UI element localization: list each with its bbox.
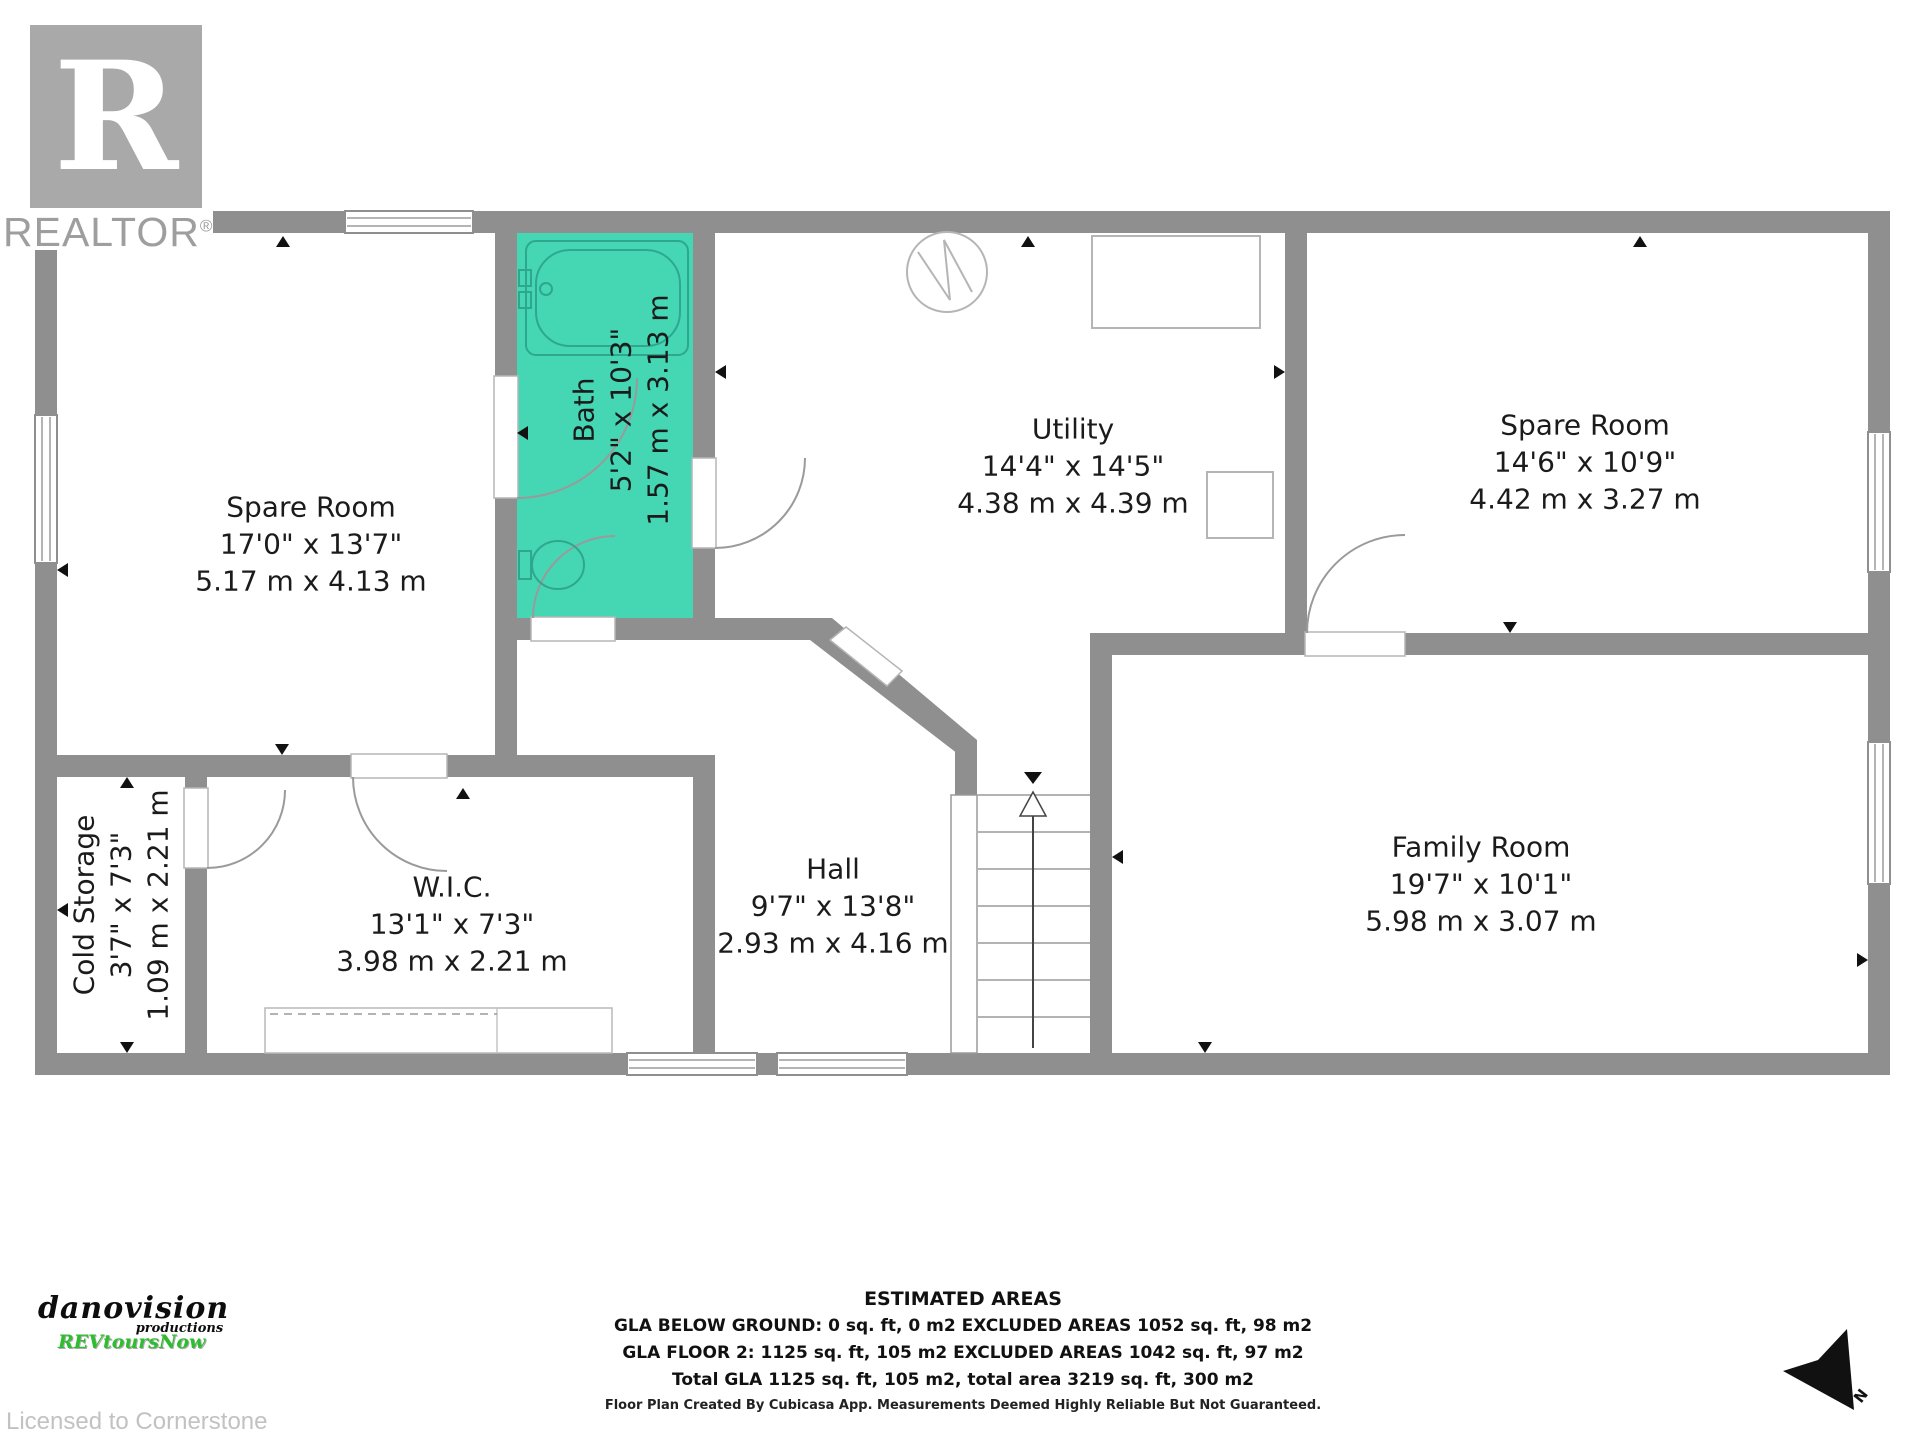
producer-brand: REVtoursNow — [58, 1333, 229, 1352]
stairs-marker-icon — [1024, 772, 1042, 784]
wall-family-left — [1090, 655, 1112, 1053]
window — [627, 1053, 757, 1075]
room-dim-imperial: 9'7" x 13'8" — [717, 889, 948, 926]
estimated-areas-line: GLA BELOW GROUND: 0 sq. ft, 0 m2 EXCLUDE… — [614, 1313, 1312, 1340]
room-dim-imperial: 14'6" x 10'9" — [1469, 445, 1700, 482]
room-name: Hall — [717, 852, 948, 889]
wall-stair-top — [955, 740, 977, 798]
stair-stringer — [951, 795, 977, 1053]
room-name: Cold Storage — [67, 789, 104, 1020]
door-leaf — [494, 376, 518, 498]
room-name: W.I.C. — [336, 870, 567, 907]
room-dim-metric: 5.98 m x 3.07 m — [1365, 903, 1596, 940]
room-dim-metric: 5.17 m x 4.13 m — [195, 563, 426, 600]
door-leaf — [692, 458, 716, 548]
appliance-icon — [1207, 472, 1273, 538]
door-leaf — [1305, 632, 1405, 656]
room-dim-metric: 1.09 m x 2.21 m — [140, 789, 177, 1020]
room-label-cold-storage: Cold Storage 3'7" x 7'3" 1.09 m x 2.21 m — [67, 789, 178, 1020]
window — [345, 211, 473, 233]
disclaimer-text: Floor Plan Created By Cubicasa App. Meas… — [605, 1398, 1321, 1413]
room-dim-metric: 1.57 m x 3.13 m — [640, 294, 677, 525]
floor-plan-page: R REALTOR® — [0, 0, 1920, 1440]
wall-utility-spare — [1285, 233, 1307, 655]
door-leaf — [184, 788, 208, 868]
north-compass: N — [1783, 1329, 1872, 1410]
wall-family-top — [1090, 633, 1890, 655]
wall-left — [35, 250, 57, 1075]
wall-utility-bottom — [715, 618, 810, 640]
stairs — [951, 772, 1090, 1053]
room-dim-metric: 4.42 m x 3.27 m — [1469, 481, 1700, 518]
door-arc — [1307, 535, 1405, 633]
wall-bottom — [35, 1053, 1890, 1075]
estimated-areas-line: Total GLA 1125 sq. ft, 105 m2, total are… — [614, 1367, 1312, 1394]
room-dim-imperial: 3'7" x 7'3" — [104, 789, 141, 1020]
estimated-areas-title: ESTIMATED AREAS — [614, 1288, 1312, 1310]
room-name: Bath — [567, 294, 604, 525]
licensed-text: Licensed to Cornerstone — [6, 1408, 268, 1436]
room-label-family-room: Family Room 19'7" x 10'1" 5.98 m x 3.07 … — [1365, 830, 1596, 941]
room-name: Family Room — [1365, 830, 1596, 867]
window — [1868, 742, 1890, 884]
north-arrow-icon — [1783, 1329, 1854, 1410]
door-arc — [207, 790, 285, 868]
room-name: Utility — [957, 412, 1188, 449]
window — [35, 415, 57, 563]
producer-name: danovision — [38, 1294, 229, 1324]
room-dim-imperial: 19'7" x 10'1" — [1365, 867, 1596, 904]
room-dim-imperial: 17'0" x 13'7" — [195, 527, 426, 564]
estimated-areas-line: GLA FLOOR 2: 1125 sq. ft, 105 m2 EXCLUDE… — [614, 1340, 1312, 1367]
room-label-spare-room-left: Spare Room 17'0" x 13'7" 5.17 m x 4.13 m — [195, 490, 426, 601]
room-label-utility: Utility 14'4" x 14'5" 4.38 m x 4.39 m — [957, 412, 1188, 523]
door-leaf — [531, 617, 615, 641]
room-dim-imperial: 14'4" x 14'5" — [957, 449, 1188, 486]
water-heater-zigzag-icon — [918, 240, 972, 300]
room-dim-metric: 2.93 m x 4.16 m — [717, 925, 948, 962]
closet — [265, 1008, 612, 1053]
door-arc — [353, 777, 447, 871]
wall-wic-hall — [693, 755, 715, 1053]
room-name: Spare Room — [195, 490, 426, 527]
room-label-hall: Hall 9'7" x 13'8" 2.93 m x 4.16 m — [717, 852, 948, 963]
window — [777, 1053, 907, 1075]
room-name: Spare Room — [1469, 408, 1700, 445]
door-leaf — [351, 754, 447, 778]
door-arc — [715, 458, 805, 548]
wall-bath-right — [693, 233, 715, 618]
room-dim-imperial: 5'2" x 10'3" — [604, 294, 641, 525]
appliance-icon — [1092, 236, 1260, 328]
window — [1868, 432, 1890, 572]
estimated-areas: ESTIMATED AREAS GLA BELOW GROUND: 0 sq. … — [614, 1288, 1312, 1395]
floor-plan-svg: N — [0, 0, 1920, 1440]
room-label-spare-room-right: Spare Room 14'6" x 10'9" 4.42 m x 3.27 m — [1469, 408, 1700, 519]
room-dim-metric: 4.38 m x 4.39 m — [957, 485, 1188, 522]
room-dim-imperial: 13'1" x 7'3" — [336, 907, 567, 944]
room-label-wic: W.I.C. 13'1" x 7'3" 3.98 m x 2.21 m — [336, 870, 567, 981]
producer-logo: danovision productions REVtoursNow — [38, 1294, 229, 1352]
room-label-bath: Bath 5'2" x 10'3" 1.57 m x 3.13 m — [567, 294, 678, 525]
room-dim-metric: 3.98 m x 2.21 m — [336, 943, 567, 980]
